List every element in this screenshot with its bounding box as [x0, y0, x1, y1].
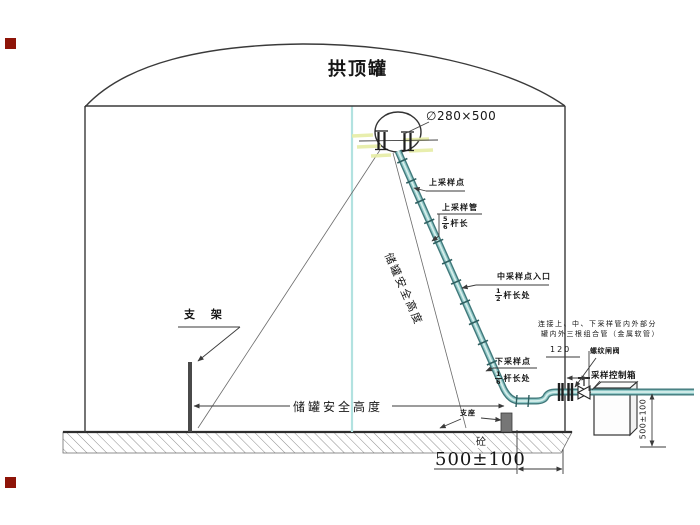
- middle-rod-length-fraction: 1 2 杆长处: [495, 288, 531, 303]
- lower-sampling-point-label: 下采样点: [495, 356, 531, 367]
- safety-height-bottom-label: 储罐安全高度: [293, 398, 383, 415]
- gauge-guide-lines: [198, 150, 466, 428]
- fraction-1-6: 1 6: [495, 371, 502, 386]
- pedestal-label: 支座: [460, 408, 476, 418]
- note-line-1: 连接上、中、下采样管内外部分: [538, 319, 657, 329]
- upper-sampling-pipe-label: 上采样管: [442, 202, 478, 213]
- bracket-label: 支 架: [184, 306, 228, 322]
- fraction-1-2: 1 2: [495, 288, 502, 303]
- note-line-2: 罐内外三根组合管（金属软管）: [541, 329, 660, 339]
- upper-rod-length-fraction: 5 6 杆长: [442, 216, 469, 231]
- manhole-size-label: ∅280×500: [426, 109, 496, 123]
- tank-shell: [85, 44, 565, 432]
- middle-sampling-point-label: 中采样点入口: [497, 271, 551, 282]
- control-box-label: 采样控制箱: [591, 369, 636, 381]
- foundation-edge-dimension: 500±100: [435, 449, 526, 470]
- lower-rod-length-fraction: 1 6 杆长处: [495, 371, 531, 386]
- box-height-dimension: 500±100: [639, 399, 648, 440]
- upper-sampling-point-label: 上采样点: [429, 177, 465, 188]
- concrete-symbol: 砼: [475, 433, 487, 448]
- red-marker-bottom: [5, 477, 16, 488]
- label-leaders: [178, 188, 600, 428]
- red-marker-top: [5, 38, 16, 49]
- fraction-5-6: 5 6: [442, 216, 449, 231]
- drawing-canvas: 拱顶罐 ∅280×500 上采样点 上采样管 5 6 杆长 中采样点入口 1 2…: [0, 0, 700, 525]
- drawing-title: 拱顶罐: [310, 55, 406, 81]
- pipe-pedestal: [501, 413, 512, 432]
- bracket-post: [188, 362, 192, 432]
- valve-label: 螺纹闸阀: [590, 346, 620, 356]
- wall-offset-dimension: 120: [550, 345, 571, 354]
